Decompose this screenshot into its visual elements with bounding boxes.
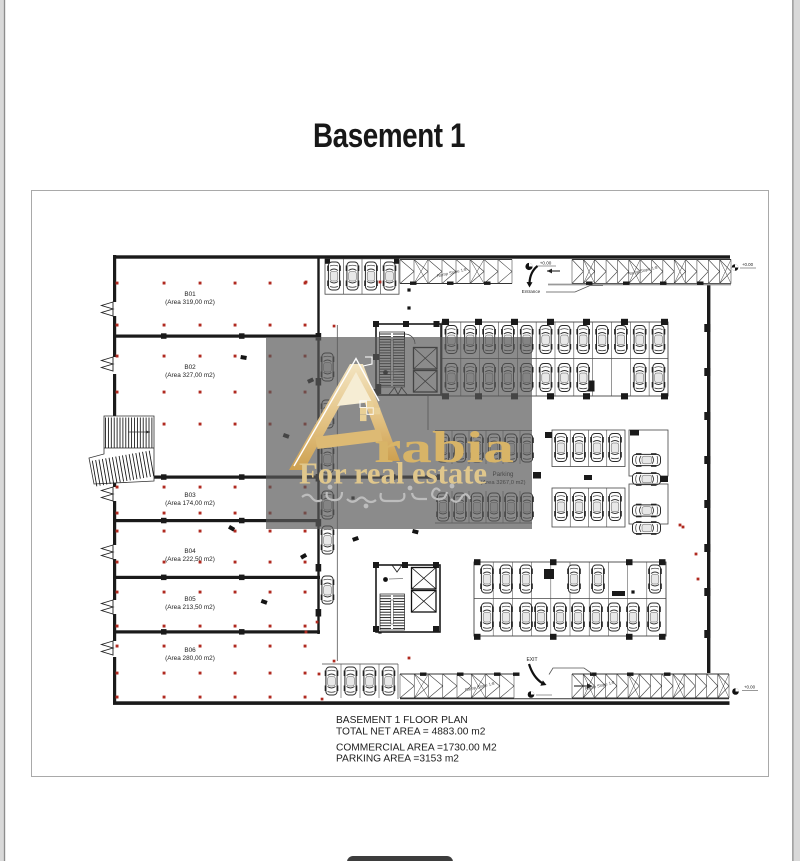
svg-text:(Area 327,00 m2): (Area 327,00 m2) bbox=[165, 372, 215, 379]
svg-text:For real estate: For real estate bbox=[299, 456, 487, 491]
svg-text:(Area 319,00 m2): (Area 319,00 m2) bbox=[165, 299, 215, 306]
svg-text:COMMERCIAL AREA =1730.00 M2: COMMERCIAL AREA =1730.00 M2 bbox=[336, 743, 497, 754]
svg-text:B06: B06 bbox=[184, 647, 196, 654]
svg-text:+0.00: +0.00 bbox=[742, 262, 754, 267]
svg-text:(Area 213,50 m2): (Area 213,50 m2) bbox=[165, 604, 215, 611]
svg-text:+0.00: +0.00 bbox=[540, 261, 552, 266]
svg-text:B03: B03 bbox=[184, 492, 196, 499]
svg-text:BASEMENT 1 FLOOR PLAN: BASEMENT 1 FLOOR PLAN bbox=[336, 715, 468, 726]
svg-text:B04: B04 bbox=[184, 548, 196, 555]
svg-text:Basement 1: Basement 1 bbox=[313, 117, 465, 155]
svg-text:(Area 280,00 m2): (Area 280,00 m2) bbox=[165, 655, 215, 662]
svg-text:+0.00: +0.00 bbox=[744, 685, 756, 690]
svg-text:(Area 222,50 m2): (Area 222,50 m2) bbox=[165, 556, 215, 563]
svg-text:Entrance: Entrance bbox=[522, 289, 541, 294]
svg-text:B05: B05 bbox=[184, 596, 196, 603]
svg-text:B02: B02 bbox=[184, 364, 196, 371]
svg-text:EXIT: EXIT bbox=[526, 657, 537, 663]
svg-text:B01: B01 bbox=[184, 291, 196, 298]
svg-text:PARKING AREA =3153 m2: PARKING AREA =3153 m2 bbox=[336, 754, 459, 765]
svg-text:TOTAL NET AREA = 4883.00 m2: TOTAL NET AREA = 4883.00 m2 bbox=[336, 727, 486, 738]
svg-text:(Area 174,00 m2): (Area 174,00 m2) bbox=[165, 500, 215, 507]
